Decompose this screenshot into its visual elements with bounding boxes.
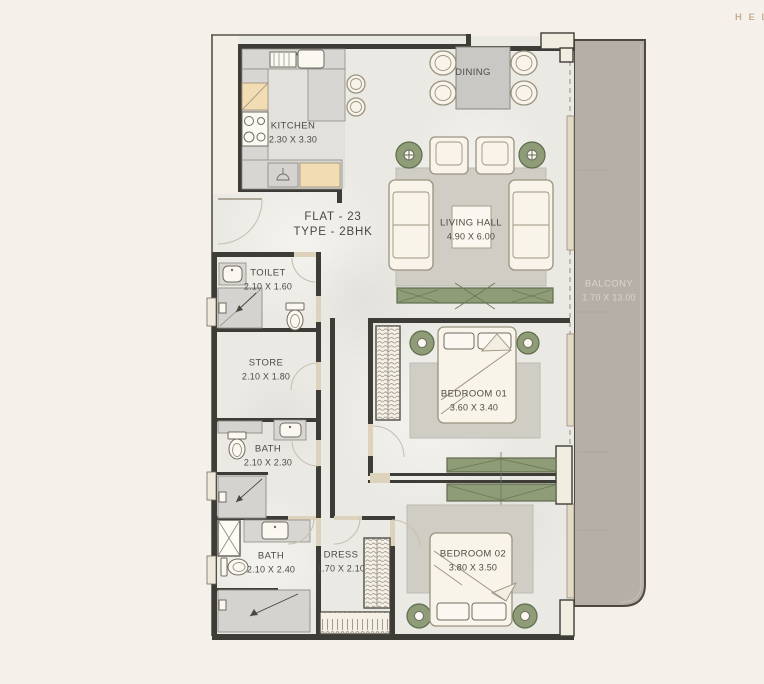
stove-icon — [242, 112, 268, 146]
washbasin-icon — [274, 420, 306, 440]
bedroom2-window — [567, 504, 574, 598]
room-name: BATH — [247, 551, 295, 563]
room-name: TOILET — [244, 268, 292, 280]
linen-box — [218, 520, 240, 556]
room-name: BATH — [244, 444, 292, 456]
brand-watermark: H E L — [735, 12, 764, 23]
toilet-window — [207, 298, 216, 326]
room-name: STORE — [242, 358, 290, 370]
floor-plan-page: FLAT - 23 TYPE - 2BHK KITCHEN 2.30 X 3.3… — [0, 0, 764, 684]
room-dim: 3.60 X 3.40 — [441, 402, 507, 414]
plan-title: FLAT - 23 TYPE - 2BHK — [293, 210, 372, 240]
room-name: BALCONY — [582, 279, 635, 291]
balcony-area — [574, 40, 645, 606]
room-label-toilet: TOILET 2.10 X 1.60 — [244, 268, 292, 293]
plan-title-line1: FLAT - 23 — [293, 210, 372, 225]
room-name: LIVING HALL — [440, 218, 502, 230]
duct-shaft — [213, 36, 239, 194]
room-label-balcony: BALCONY 1.70 X 13.00 — [582, 279, 635, 304]
room-name: DRESS — [317, 550, 365, 562]
room-name: BEDROOM 01 — [441, 389, 507, 401]
room-dim: 3.80 X 3.50 — [440, 562, 506, 574]
wc-icon — [286, 303, 304, 330]
room-label-dress: DRESS 1.70 X 2.10 — [317, 550, 365, 575]
washbasin-icon — [244, 520, 310, 542]
room-name: BEDROOM 02 — [440, 549, 506, 561]
room-label-bath-2: BATH 2.10 X 2.40 — [247, 551, 295, 576]
shower-icon — [218, 590, 310, 632]
room-dim: 1.70 X 2.10 — [317, 563, 365, 575]
room-name: DINING — [455, 67, 491, 79]
room-dim: 2.10 X 2.30 — [244, 457, 292, 469]
room-label-bath-1: BATH 2.10 X 2.30 — [244, 444, 292, 469]
room-dim: 2.10 X 1.80 — [242, 371, 290, 383]
plan-title-line2: TYPE - 2BHK — [293, 225, 372, 240]
room-dim: 4.90 X 6.00 — [440, 231, 502, 243]
washbasin-icon — [219, 263, 246, 285]
floor-plan-canvas — [0, 0, 764, 684]
room-label-living-hall: LIVING HALL 4.90 X 6.00 — [440, 218, 502, 243]
wardrobe — [376, 326, 400, 420]
wc-icon — [221, 558, 248, 576]
room-label-dining: DINING — [455, 67, 491, 79]
room-name: KITCHEN — [269, 121, 317, 133]
bath1-window — [207, 472, 216, 500]
room-dim: 2.10 X 1.60 — [244, 281, 292, 293]
bath1-shelf — [218, 421, 262, 433]
bed-icon — [430, 533, 516, 626]
room-dim: 1.70 X 13.00 — [582, 292, 635, 304]
kitchen-island — [308, 69, 345, 121]
room-dim: 2.30 X 3.30 — [269, 134, 317, 146]
dishwasher-icon — [268, 163, 298, 187]
room-label-bedroom-02: BEDROOM 02 3.80 X 3.50 — [440, 549, 506, 574]
shower-icon — [218, 288, 262, 328]
fridge — [300, 163, 340, 187]
room-label-bedroom-01: BEDROOM 01 3.60 X 3.40 — [441, 389, 507, 414]
room-label-store: STORE 2.10 X 1.80 — [242, 358, 290, 383]
corner-cabinet — [242, 83, 268, 110]
shower-icon — [218, 476, 266, 518]
room-dim: 2.10 X 2.40 — [247, 564, 295, 576]
wardrobe — [320, 612, 390, 634]
bath2-window — [207, 556, 216, 584]
room-label-kitchen: KITCHEN 2.30 X 3.30 — [269, 121, 317, 146]
wardrobe — [364, 538, 390, 608]
bedroom1-window — [567, 334, 574, 426]
sliding-door — [567, 116, 574, 250]
